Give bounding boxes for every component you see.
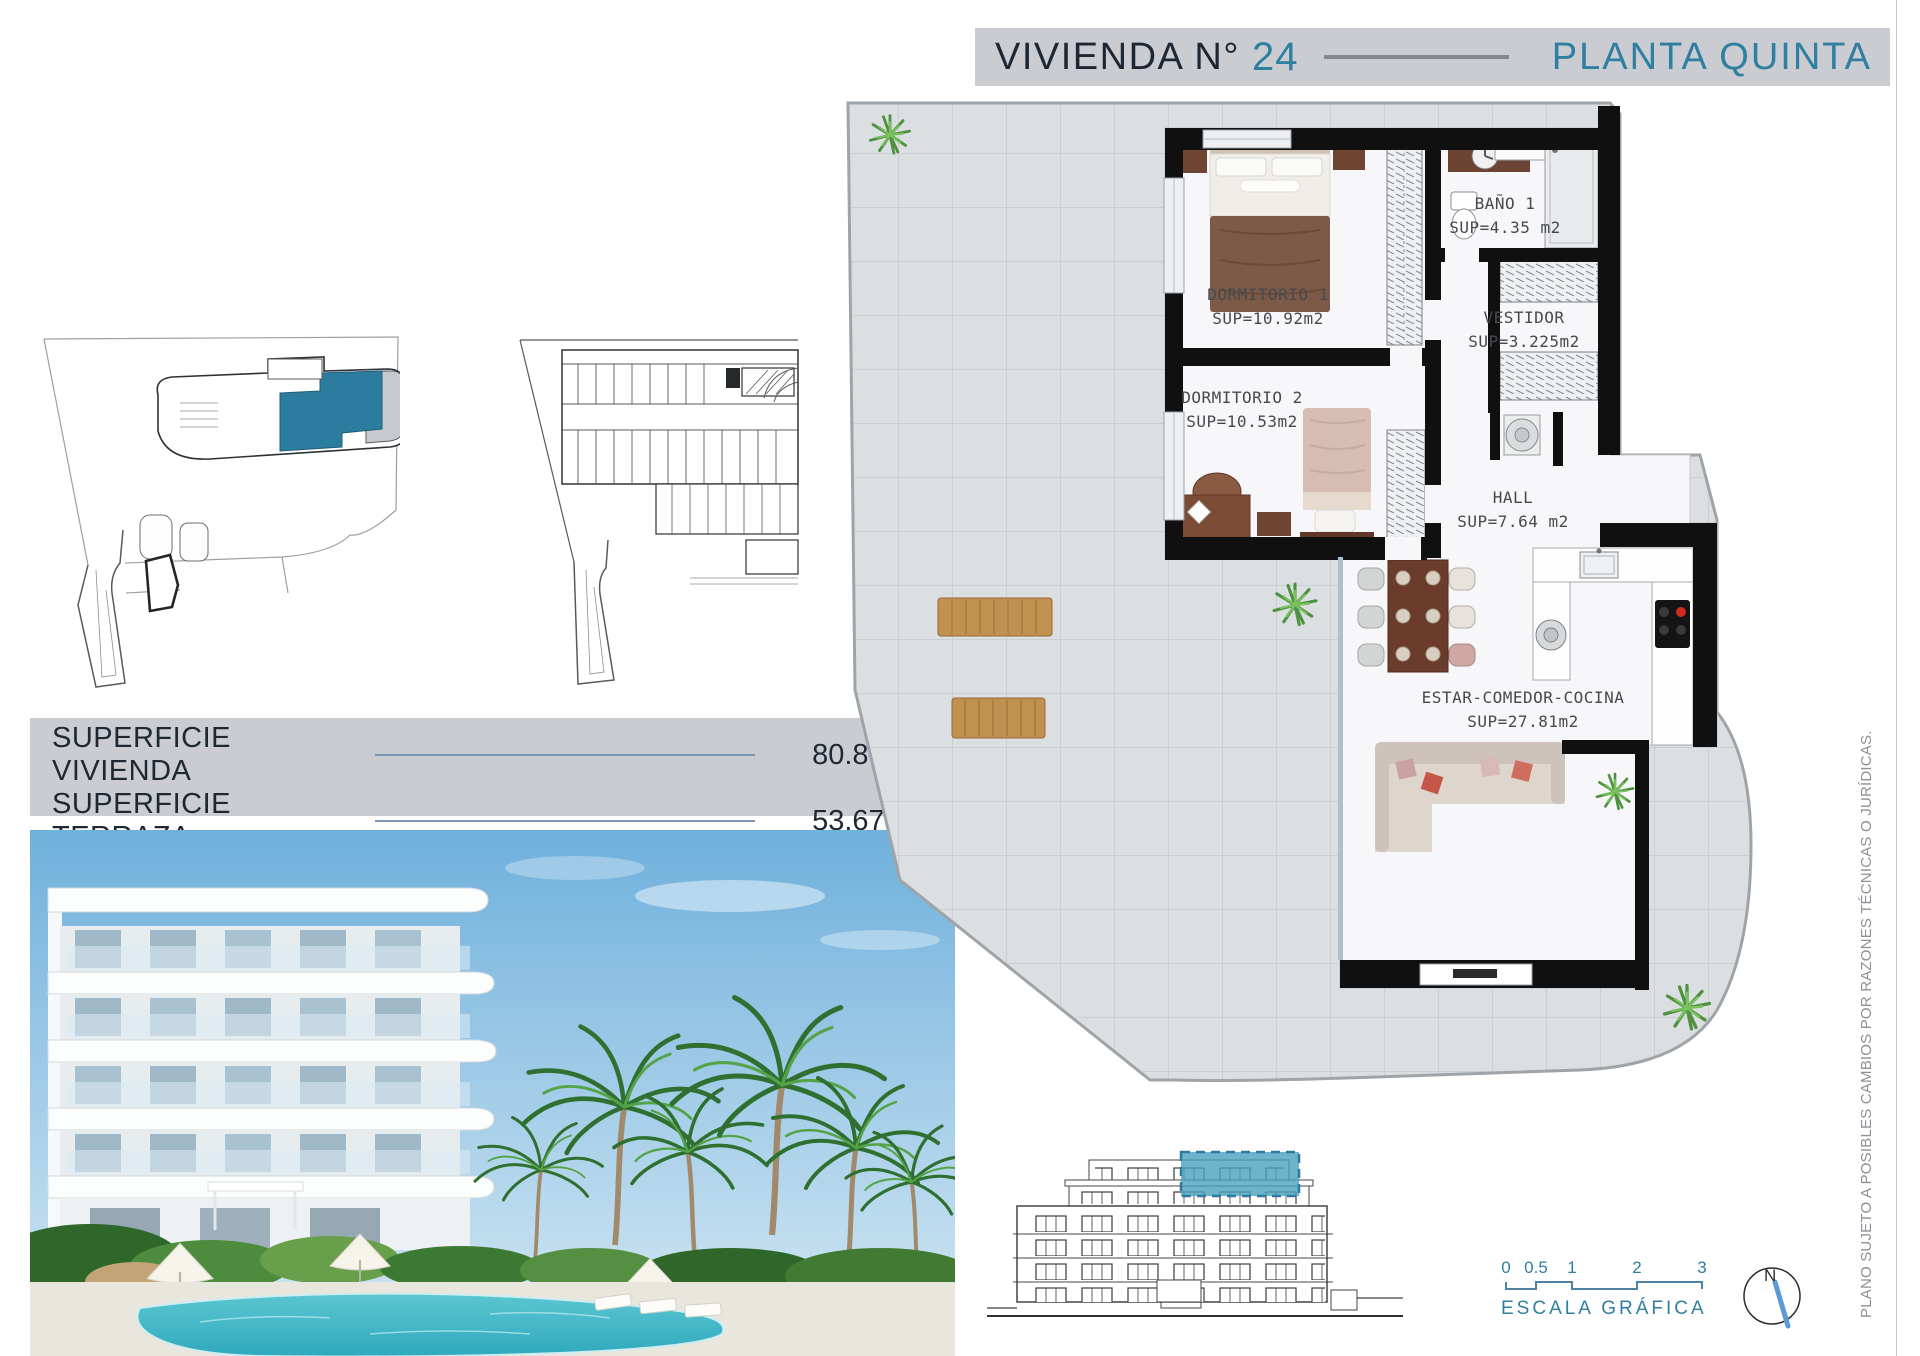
building-photo [30, 830, 955, 1356]
leader-line [375, 754, 755, 756]
room-label-vestidor: VESTIDOR SUP=3.225m2 [1468, 306, 1579, 354]
floor-plan [845, 100, 1820, 1095]
lounger [938, 598, 1052, 636]
floor-label: PLANTA QUINTA [1552, 36, 1872, 79]
disclaimer-text: PLANO SUJETO A POSIBLES CAMBIOS POR RAZO… [1858, 852, 1886, 1318]
page-title: VIVIENDA N° [995, 36, 1240, 79]
scale-bar: 0 0.5 1 2 3 ESCALA GRÁFICA [1495, 1258, 1735, 1324]
scale-label: ESCALA GRÁFICA [1501, 1298, 1707, 1320]
area-row-vivienda: SUPERFICIE VIVIENDA 80.86 m2 [52, 722, 933, 788]
laundry-sink [1504, 415, 1540, 455]
area-label: SUPERFICIE VIVIENDA [52, 722, 357, 788]
page-border [1896, 0, 1897, 1356]
tv-console [1420, 964, 1532, 985]
glass-door [1338, 557, 1343, 960]
room-label-dormitorio-2: DORMITORIO 2 SUP=10.53m2 [1181, 386, 1303, 434]
site-plan-location [30, 275, 400, 695]
unit-number: 24 [1252, 35, 1299, 80]
dining-table [1358, 560, 1475, 672]
header-divider [1324, 55, 1509, 59]
site-plan-garage [428, 272, 800, 692]
photo-building [48, 888, 496, 1250]
north-label: N [1764, 1266, 1776, 1286]
room-label-dormitorio-1: DORMITORIO 1 SUP=10.92m2 [1207, 283, 1329, 331]
compass: N [1738, 1254, 1810, 1340]
wardrobe [1387, 145, 1422, 345]
brochure-page: VIVIENDA N° 24 PLANTA QUINTA [0, 0, 1920, 1356]
areas-panel: SUPERFICIE VIVIENDA 80.86 m2 SUPERFICIE … [30, 718, 955, 816]
lounger [952, 698, 1045, 738]
room-label-bano-1: BAÑO 1 SUP=4.35 m2 [1449, 192, 1560, 240]
highlighted-floor [1181, 1152, 1299, 1196]
building-elevation [985, 1140, 1405, 1355]
compass-needle [1775, 1282, 1788, 1326]
room-label-estar-comedor-cocina: ESTAR-COMEDOR-COCINA SUP=27.81m2 [1422, 686, 1625, 734]
wardrobe [1387, 430, 1425, 538]
leader-line [375, 820, 755, 822]
header-bar: VIVIENDA N° 24 PLANTA QUINTA [975, 28, 1890, 86]
room-label-hall: HALL SUP=7.64 m2 [1457, 486, 1568, 534]
